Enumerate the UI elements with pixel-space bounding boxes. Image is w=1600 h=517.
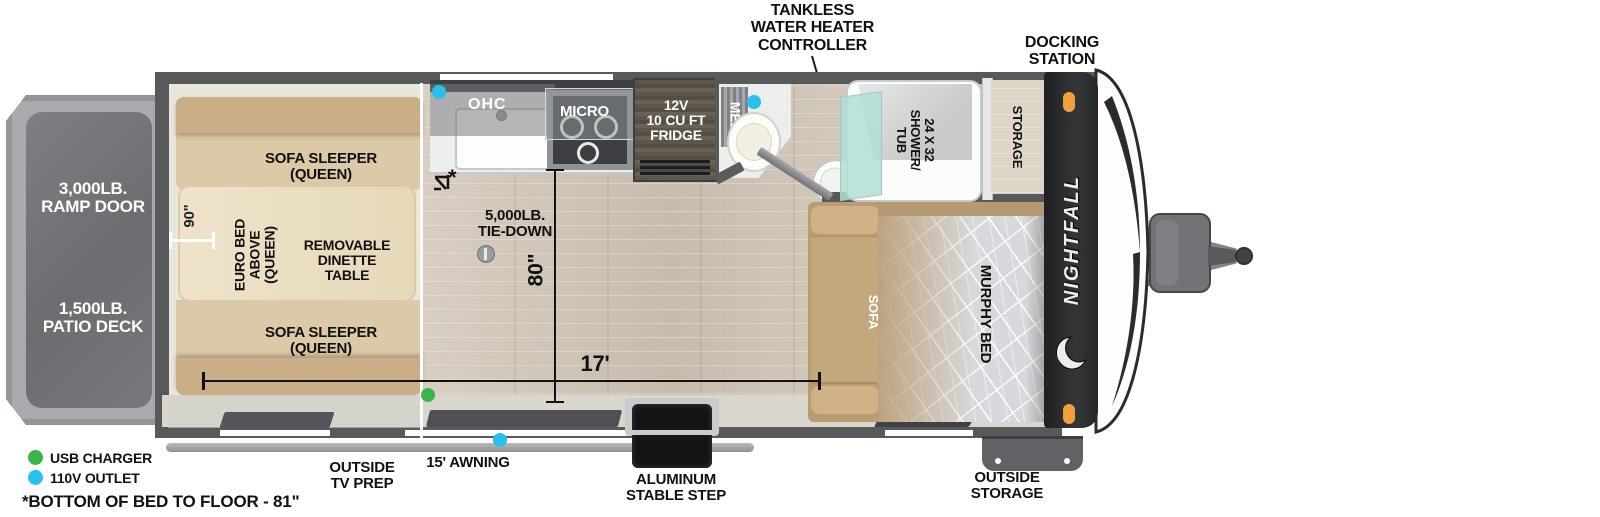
sofa-armrest-top <box>811 206 879 234</box>
fold-down-asterisk: * <box>448 166 456 190</box>
fridge-label: 12V 10 CU FT FRIDGE <box>633 98 719 143</box>
entry-door-trim <box>885 430 973 436</box>
skirt-trim-2 <box>405 430 633 436</box>
dim-17-cap-left <box>202 372 205 390</box>
legend-110v-label: 110V OUTLET <box>50 471 140 486</box>
outlet-110v-bath <box>747 95 761 109</box>
stove-burner-3 <box>577 142 599 164</box>
outlet-110v-kitchen <box>432 85 446 99</box>
outside-storage-label: OUTSIDE STORAGE <box>957 470 1057 502</box>
legend-110v-dot <box>28 470 43 485</box>
ramp-door-label: 3,000LB. RAMP DOOR <box>28 180 158 217</box>
dim-90-label: 90" <box>182 204 198 227</box>
outside-storage-flap <box>982 436 1083 471</box>
marker-light-bottom <box>1063 404 1075 424</box>
tv-prep-panel <box>219 412 334 428</box>
sofa-sleeper-top-label: SOFA SLEEPER (QUEEN) <box>236 151 406 183</box>
murphy-bed-label: MURPHY BED <box>977 265 993 364</box>
sofa-sleeper-bottom-label: SOFA SLEEPER (QUEEN) <box>236 325 406 357</box>
awning-roll-panel <box>426 410 622 427</box>
shower-label: 24 X 32 SHOWER/ TUB <box>894 110 936 171</box>
legend-usb-dot <box>28 450 43 465</box>
storage-label: STORAGE <box>1010 106 1024 169</box>
tie-down-anchor-icon <box>477 245 495 263</box>
fridge-vent <box>640 160 710 175</box>
outside-tv-prep-label: OUTSIDE TV PREP <box>312 460 412 492</box>
floorplan-diagram: TANKLESS WATER HEATER CONTROLLER DOCKING… <box>0 0 1600 517</box>
ramp-door-panel <box>26 112 152 408</box>
skirt-trim-1 <box>220 430 330 436</box>
sofa-armrest-bottom <box>811 386 879 414</box>
stable-step-label: ALUMINUM STABLE STEP <box>606 472 746 504</box>
dim-80-label: 80" <box>526 254 549 287</box>
dinette-table-label: REMOVABLE DINETTE TABLE <box>297 238 397 283</box>
usb-charger-dot <box>421 388 435 402</box>
bedroom-sofa-label: SOFA <box>866 295 880 330</box>
outlet-110v-awning <box>493 433 507 447</box>
micro-label: MICRO <box>560 104 609 120</box>
euro-bed-label: EURO BED ABOVE (QUEEN) <box>232 219 277 291</box>
awning-label: 15' AWNING <box>418 455 518 471</box>
sofa-sleeper-bottom-back <box>176 358 422 395</box>
dim-90-cap-right <box>212 232 215 249</box>
dim-80-cap-top <box>546 169 564 171</box>
patio-deck-label: 1,500LB. PATIO DECK <box>28 300 158 337</box>
dim-80-cap-bottom <box>546 401 564 403</box>
tankless-water-heater-label: TANKLESS WATER HEATER CONTROLLER <box>730 2 895 54</box>
dim-17-label: 17' <box>565 352 625 376</box>
marker-light-top <box>1063 92 1075 112</box>
aluminum-step-tread-gap <box>632 430 712 435</box>
legend-usb-label: USB CHARGER <box>50 451 152 466</box>
tie-down-label: 5,000LB. TIE-DOWN <box>455 208 575 240</box>
shower-glass <box>840 91 882 201</box>
dim-17-line <box>203 380 820 382</box>
dim-17-cap-right <box>818 372 821 390</box>
sofa-sleeper-top-back <box>176 97 422 133</box>
bed-height-note: *BOTTOM OF BED TO FLOOR - 81" <box>22 493 299 511</box>
dim-90-line <box>170 239 214 242</box>
brand-logo-text: NIGHTFALL <box>1062 175 1084 305</box>
slideout-divider-line <box>420 83 423 440</box>
hitch-ball <box>1236 248 1252 264</box>
aluminum-step <box>632 404 712 468</box>
ohc-label: OHC <box>468 96 507 113</box>
murphy-bed-blanket-shade <box>878 216 990 422</box>
rear-wall <box>155 72 169 438</box>
front-cap-and-hitch <box>1086 48 1260 458</box>
dim-80-line <box>554 170 556 403</box>
propane-cover-highlight <box>1156 220 1178 286</box>
dim-90-cap-left <box>169 232 172 249</box>
